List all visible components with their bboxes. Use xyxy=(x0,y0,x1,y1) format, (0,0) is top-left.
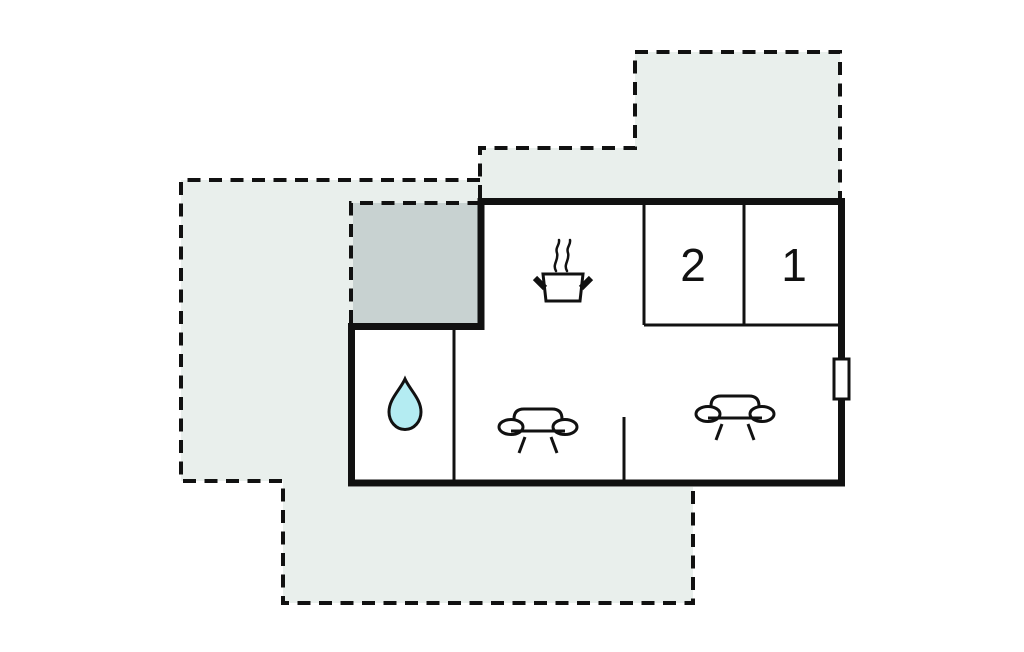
window-marker xyxy=(834,359,849,399)
floorplan-canvas: 2 1 xyxy=(0,0,1024,652)
covered-terrace-area xyxy=(353,203,478,323)
floorplan-drawing xyxy=(0,0,1024,652)
room-label-2: 2 xyxy=(680,242,706,288)
room-label-1: 1 xyxy=(781,242,807,288)
